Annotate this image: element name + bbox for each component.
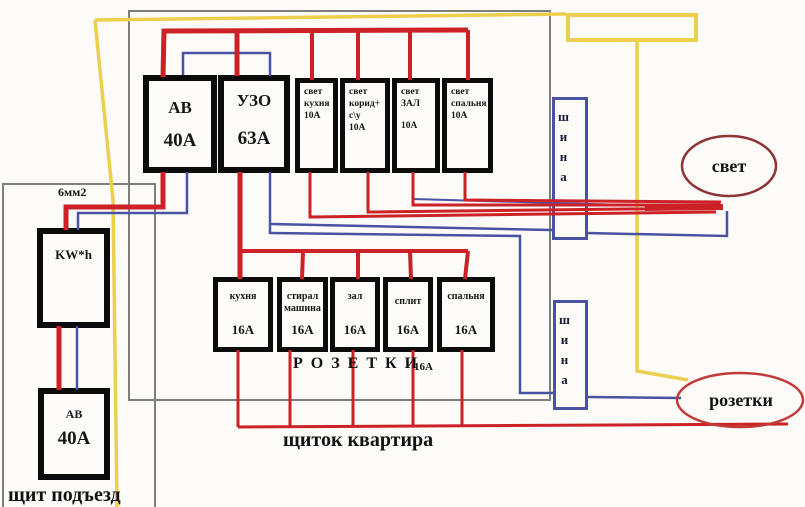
wiring-diagram: АВ 40А УЗО 63А свет кухня 10А свет корид… <box>0 0 805 507</box>
socket-breaker-split: сплит 16А <box>383 277 433 352</box>
rcd-rating: 63А <box>238 128 271 150</box>
breaker-rating: 16А <box>397 322 419 338</box>
entrance-breaker-rating: 40А <box>58 428 91 450</box>
breaker-line: кухня <box>304 99 329 111</box>
ground-wire-to-sockets <box>637 42 688 380</box>
breaker-line: свет <box>349 87 367 99</box>
socket-bus: шина <box>553 300 588 410</box>
breaker-line: 10А <box>304 111 320 123</box>
sockets-group-label: Р О З Е Т К И <box>293 356 419 372</box>
main-breaker-rating: 40А <box>164 130 197 152</box>
ground-block <box>566 13 698 42</box>
breaker-rating: 16А <box>291 322 313 338</box>
apartment-panel-caption: щиток квартира <box>283 430 433 450</box>
breaker-line: машина <box>284 303 321 314</box>
light-breaker-bedroom: свет спальня 10А <box>442 78 493 173</box>
light-breaker-kitchen: свет кухня 10А <box>295 78 338 173</box>
light-return-merge <box>645 207 723 208</box>
meter-box: KW*h <box>37 228 110 328</box>
breaker-line: 10А <box>401 121 417 133</box>
breaker-line: спальня <box>451 99 487 111</box>
sockets-load-label: розетки <box>689 391 793 409</box>
socket-breaker-bedroom: спальня 16А <box>437 277 495 352</box>
breaker-line: с\у <box>349 111 361 123</box>
breaker-line: 10А <box>349 123 365 135</box>
light-breaker-corridor: свет корид+ с\у 10А <box>340 78 390 173</box>
breaker-line: стирал машина <box>284 291 321 315</box>
light-bus: шина <box>552 97 588 240</box>
light-load-label: свет <box>699 157 759 175</box>
neutral-socketbus-to-sockets <box>588 397 681 398</box>
sockets-group-rating: 16А <box>414 362 433 373</box>
breaker-line: свет <box>451 87 469 99</box>
breaker-line: сплит <box>395 296 421 308</box>
breaker-line: стирал <box>287 291 318 302</box>
neutral-lightbus-to-light <box>586 211 727 236</box>
breaker-line: свет <box>401 87 419 99</box>
entrance-breaker-box: АВ 40А <box>38 388 110 480</box>
breaker-line: зал <box>348 291 363 303</box>
breaker-line: ЗАЛ <box>401 99 420 111</box>
rcd-box: УЗО 63А <box>218 75 290 173</box>
breaker-line: корид+ <box>349 99 380 111</box>
light-breaker-hall: свет ЗАЛ 10А <box>392 78 440 173</box>
meter-label: KW*h <box>55 247 92 263</box>
breaker-rating: 16А <box>232 322 254 338</box>
breaker-line: кухня <box>230 291 257 303</box>
breaker-rating: 16А <box>344 322 366 338</box>
main-breaker-name: АВ <box>168 98 192 118</box>
breaker-line: свет <box>304 87 322 99</box>
cable-size-label: 6мм2 <box>58 186 86 198</box>
socket-breaker-kitchen: кухня 16А <box>213 277 273 352</box>
socket-breaker-washer: стирал машина 16А <box>277 277 328 352</box>
breaker-rating: 16А <box>455 322 477 338</box>
rcd-name: УЗО <box>237 91 271 111</box>
entrance-breaker-name: АВ <box>66 407 83 422</box>
socket-breaker-hall: зал 16А <box>330 277 380 352</box>
main-breaker-box: АВ 40А <box>143 75 217 173</box>
breaker-line: 10А <box>451 111 467 123</box>
entrance-panel-caption: щит подъезд <box>8 485 121 505</box>
breaker-line: спальня <box>447 291 484 303</box>
socket-bottom-bus <box>238 424 788 427</box>
